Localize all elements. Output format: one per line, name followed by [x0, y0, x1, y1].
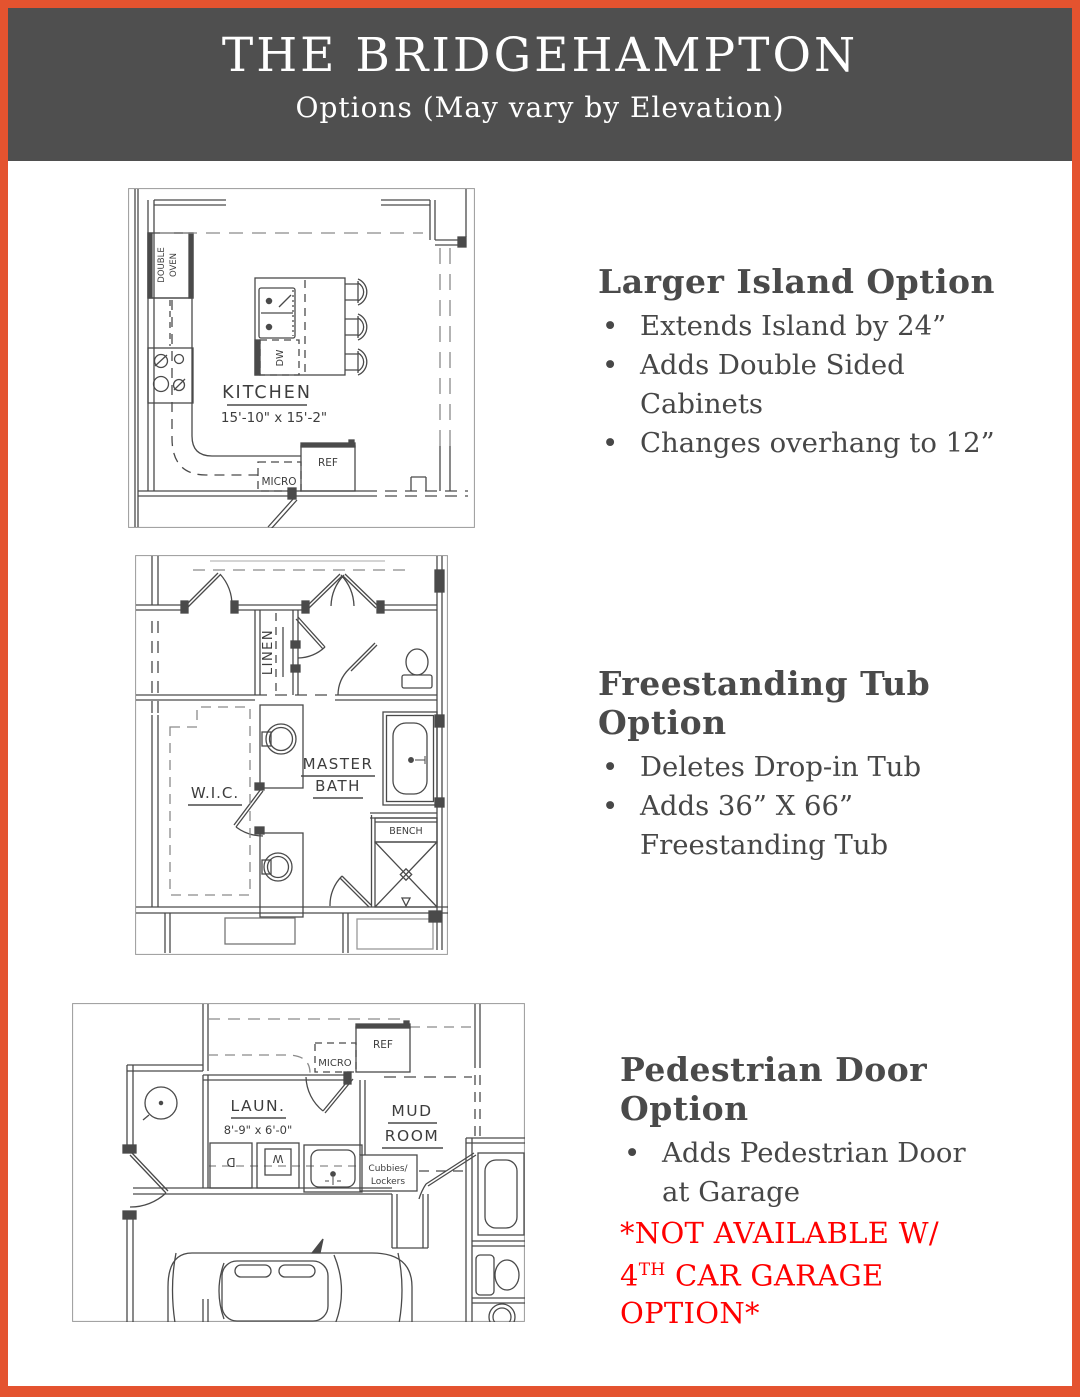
room-label: ROOM	[385, 1127, 440, 1145]
master-bath-floor-plan: LINEN W.I.C. MASTER BATH BENCH	[135, 555, 448, 955]
washer-label: W	[272, 1152, 283, 1165]
bullet-icon: •	[598, 307, 640, 346]
linen-label: LINEN	[261, 629, 276, 675]
bullet-item: • Deletes Drop-in Tub	[598, 748, 993, 787]
double-oven-label-2: OVEN	[169, 253, 179, 277]
section-heading: Freestanding Tub Option	[598, 664, 993, 742]
fridge-label: REF	[373, 1039, 393, 1051]
not-available-note: *NOT AVAILABLE W/ 4TH CAR GARAGE OPTION*	[620, 1215, 992, 1332]
bath-label: BATH	[315, 777, 361, 795]
bench-label: BENCH	[389, 826, 422, 837]
microwave-label: MICRO	[318, 1058, 352, 1069]
master-label: MASTER	[303, 755, 374, 773]
page-subtitle: Options (May vary by Elevation)	[8, 91, 1072, 124]
dryer-label: D	[226, 1155, 235, 1169]
bullet-item: • Adds Pedestrian Door at Garage	[620, 1134, 992, 1212]
bullet-icon: •	[598, 424, 640, 463]
wic-label: W.I.C.	[191, 784, 239, 802]
bullet-icon: •	[598, 346, 640, 424]
bullet-icon: •	[620, 1134, 662, 1212]
header-band: THE BRIDGEHAMPTON Options (May vary by E…	[8, 8, 1072, 161]
kitchen-dims-label: 15'-10" x 15'-2"	[221, 410, 327, 426]
section-heading: Pedestrian Door Option	[620, 1050, 992, 1128]
bullet-item: • Changes overhang to 12”	[598, 424, 998, 463]
section-larger-island: Larger Island Option • Extends Island by…	[598, 262, 998, 463]
kitchen-floor-plan: KITCHEN 15'-10" x 15'-2" DOUBLE OVEN DW …	[128, 188, 475, 528]
mud-label: MUD	[391, 1102, 432, 1120]
double-oven-label-1: DOUBLE	[157, 247, 167, 282]
page-title: THE BRIDGEHAMPTON	[8, 28, 1072, 83]
plan-frame	[136, 556, 448, 955]
note-superscript: TH	[639, 1260, 666, 1280]
bullet-icon: •	[598, 748, 640, 787]
cubbies-label-1: Cubbies/	[368, 1164, 408, 1174]
microwave-label: MICRO	[261, 476, 296, 488]
laundry-dims-label: 8'-9" x 6'-0"	[224, 1123, 293, 1137]
bullet-item: • Adds 36” X 66” Freestanding Tub	[598, 787, 993, 865]
laundry-label: LAUN.	[231, 1097, 286, 1115]
lockers-label-2: Lockers	[371, 1177, 405, 1187]
dishwasher-label: DW	[275, 349, 286, 366]
flyer-page: { "page": { "title": "THE BRIDGEHAMPTON"…	[0, 0, 1080, 1397]
section-freestanding-tub: Freestanding Tub Option • Deletes Drop-i…	[598, 664, 993, 865]
bullet-item: • Adds Double Sided Cabinets	[598, 346, 998, 424]
section-heading: Larger Island Option	[598, 262, 998, 301]
fridge-label: REF	[318, 457, 338, 469]
section-pedestrian-door: Pedestrian Door Option • Adds Pedestrian…	[620, 1050, 992, 1332]
mud-room-floor-plan: REF MICRO LAUN. 8'-9" x 6'-0" MUD ROOM C…	[72, 1003, 525, 1322]
bullet-item: • Extends Island by 24”	[598, 307, 998, 346]
kitchen-room-label: KITCHEN	[222, 383, 312, 403]
bullet-icon: •	[598, 787, 640, 865]
